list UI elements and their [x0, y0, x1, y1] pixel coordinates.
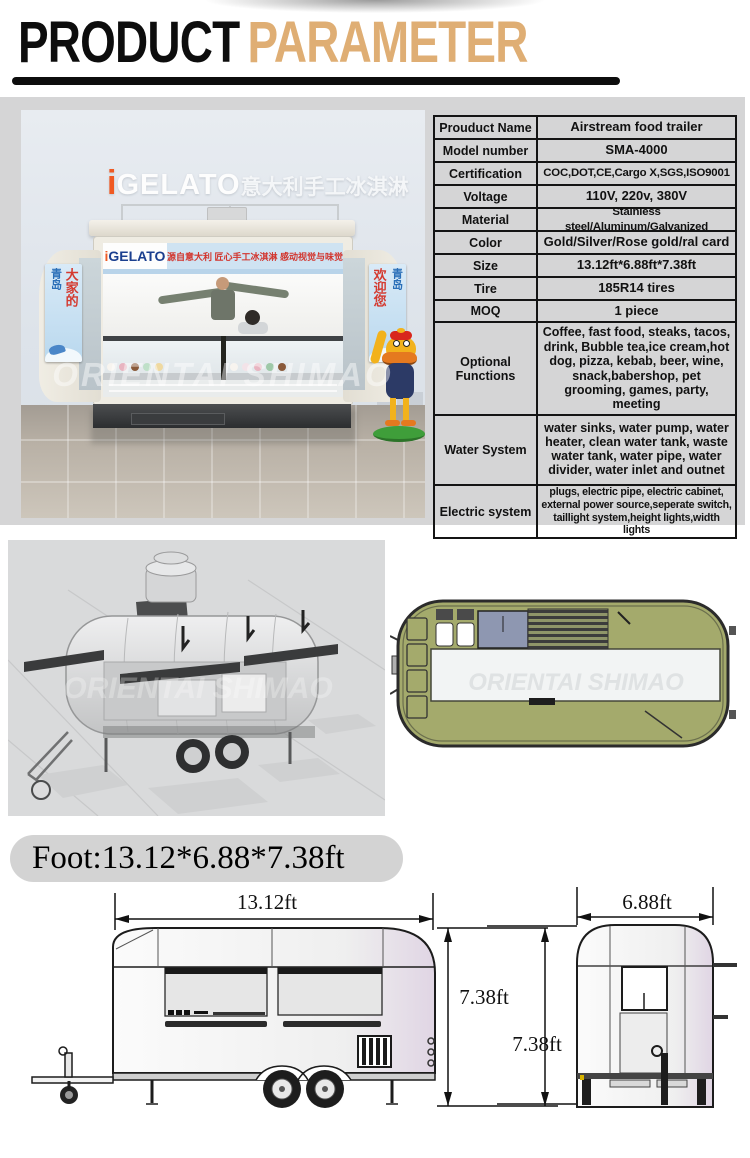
window-top-bar [165, 968, 267, 974]
row-value: COC,DOT,CE,Cargo X,SGS,ISO9001 [536, 163, 735, 184]
row-value: 110V, 220v, 380V [536, 186, 735, 207]
product-parameter-page: PRODUCTPARAMETER iGELATO意大利手工冰淇淋 [0, 0, 750, 1158]
row-value: 185R14 tires [536, 278, 735, 299]
dimension-drawings: 13.12ft 7.38ft 7.38ft [25, 885, 740, 1135]
mural-head [216, 277, 229, 290]
banner-chinese-slogan: 源自意大利 匠心手工冰淇淋 感动视觉与味觉 [167, 243, 343, 269]
sink [457, 623, 474, 646]
plan-watermark: ORIENTAI SHIMAO [468, 669, 684, 696]
spec-panel: iGELATO意大利手工冰淇淋 iGELATO 源自意大利 匠心手工冰淇淋 感动… [0, 97, 745, 525]
side-window-left [165, 968, 267, 1016]
footprint-label: Foot:13.12*6.88*7.38ft [32, 840, 345, 877]
table-row: MaterialStainless steel/Aluminum/Galvani… [435, 207, 735, 230]
row-label: Model number [435, 140, 536, 161]
cad-3d-drawing: ORIENTAI SHIMAO [8, 540, 385, 816]
shelf-bar-right [283, 1021, 381, 1027]
seat [407, 696, 427, 718]
plan-fixtures-top [436, 609, 630, 649]
table-row: Size13.12ft*6.88ft*7.38ft [435, 253, 735, 276]
spec-table: Prouduct NameAirstream food trailer Mode… [433, 115, 737, 539]
dim-length-label: 13.12ft [237, 890, 297, 914]
poster-right-red-text: 欢迎您 [372, 268, 386, 307]
table-row: MOQ1 piece [435, 299, 735, 321]
table-row: Model numberSMA-4000 [435, 138, 735, 161]
table-row: Water Systemwater sinks, water pump, wat… [435, 414, 735, 484]
row-value: 1 piece [536, 301, 735, 321]
rear-bottom-band [577, 1073, 713, 1079]
row-value: Airstream food trailer [536, 117, 735, 138]
rear-jockey-post [661, 1053, 668, 1105]
arrow [115, 915, 129, 923]
row-label: Tire [435, 278, 536, 299]
griddle-area [528, 609, 608, 649]
shelf-edge [713, 963, 737, 967]
row-value: Gold/Silver/Rose gold/ral card [536, 232, 735, 253]
row-label: Size [435, 255, 536, 276]
trailer-interior [103, 274, 343, 336]
table-row: Electric systemplugs, electric pipe, ele… [435, 484, 735, 537]
hub [322, 1086, 328, 1092]
sink [436, 623, 453, 646]
jockey-wheel [32, 781, 50, 799]
row-label: Prouduct Name [435, 117, 536, 138]
wheel-hub [223, 743, 241, 761]
arrow [699, 913, 713, 921]
marker-light [580, 1075, 584, 1080]
rooftop-sign-brand: GELATO [116, 169, 240, 201]
poster-right-blue-text: 青岛 [390, 268, 402, 290]
poster-left-red-text: 大家的 [64, 268, 78, 307]
footprint-pill: Foot:13.12*6.88*7.38ft [10, 835, 403, 882]
seat [407, 618, 427, 640]
arrow [577, 913, 591, 921]
row-label: Material [435, 209, 536, 230]
table-row: CertificationCOC,DOT,CE,Cargo X,SGS,ISO9… [435, 161, 735, 184]
floor-plan-drawing: ORIENTAI SHIMAO [390, 598, 746, 750]
rear-door-panel [620, 1013, 667, 1073]
row-label: Certification [435, 163, 536, 184]
title-underline [12, 77, 620, 85]
arrow [541, 928, 549, 942]
vent-cap [154, 552, 188, 564]
row-value: SMA-4000 [536, 140, 735, 161]
mascot-leg [390, 398, 396, 422]
chassis-step [131, 413, 225, 425]
poster-left-blue-text: 青岛 [49, 268, 61, 290]
row-value: 13.12ft*6.88ft*7.38ft [536, 255, 735, 276]
poster-text: 欢迎您 [372, 268, 386, 307]
mascot-crest [397, 328, 405, 333]
pavement-line [21, 481, 425, 483]
jockey-hub [65, 1091, 73, 1099]
shelf-bar-left [165, 1021, 267, 1027]
table-row: Optional FunctionsCoffee, fast food, ste… [435, 321, 735, 414]
dim-height-side-label: 7.38ft [459, 985, 509, 1009]
mascot-eye [393, 340, 400, 347]
rear-view [577, 925, 737, 1107]
right-knobs [729, 626, 736, 719]
poster-text: 青岛 [49, 268, 61, 290]
page-title-accent: PARAMETER [248, 9, 528, 75]
dim-width-label: 6.88ft [622, 890, 672, 914]
mascot-foot [401, 420, 416, 426]
trailer-photo: iGELATO意大利手工冰淇淋 iGELATO 源自意大利 匠心手工冰淇淋 感动… [21, 110, 425, 518]
page-title-black: PRODUCT [18, 9, 239, 75]
row-value: plugs, electric pipe, electric cabinet, … [536, 486, 735, 537]
banner-brand-text: GELATO [108, 248, 165, 264]
photo-watermark: ORIENTAI SHIMAO [21, 356, 425, 394]
trailer-chassis [93, 404, 351, 428]
table-row: Prouduct NameAirstream food trailer [435, 117, 735, 138]
poster-left: 青岛 大家的 [45, 264, 82, 362]
dim-height-lines [437, 926, 577, 1106]
underbody [103, 726, 315, 738]
hub [279, 1086, 285, 1092]
row-label: Voltage [435, 186, 536, 207]
rooftop-sign-chinese: 意大利手工冰淇淋 [241, 176, 409, 199]
mascot-eye [403, 340, 410, 347]
row-value: Stainless steel/Aluminum/Galvanized [536, 209, 735, 230]
mascot-base [373, 426, 425, 442]
table-row: Voltage110V, 220v, 380V [435, 184, 735, 207]
seat [407, 670, 427, 692]
door-step [529, 698, 555, 705]
mural-torso [211, 290, 235, 320]
poster-text: 大家的 [64, 268, 78, 307]
row-label: Electric system [435, 486, 536, 537]
banner-brand: iGELATO [103, 243, 167, 269]
poster-text: 青岛 [390, 268, 402, 290]
row-label: Water System [435, 416, 536, 484]
side-window-right [278, 968, 382, 1015]
cad-watermark: ORIENTAI SHIMAO [63, 672, 332, 705]
row-value: water sinks, water pump, water heater, c… [536, 416, 735, 484]
shelf-edge [713, 1015, 728, 1019]
wheel-hub [184, 747, 202, 765]
opening-banner: iGELATO 源自意大利 匠心手工冰淇淋 感动视觉与味觉 [103, 243, 343, 269]
page-title: PRODUCTPARAMETER [18, 12, 528, 72]
arrow [419, 915, 433, 923]
tow-bar [32, 1077, 113, 1083]
dim-height-rear-label: 7.38ft [512, 1032, 562, 1056]
row-label: MOQ [435, 301, 536, 321]
trailer-roof-awning [89, 220, 355, 236]
rear-leg [697, 1079, 706, 1105]
rear-leg [582, 1079, 591, 1105]
fixture [457, 609, 474, 620]
row-label: Optional Functions [435, 323, 536, 414]
jockey-post [65, 1053, 72, 1077]
staff-head [245, 310, 260, 325]
frame-box [610, 1080, 650, 1087]
side-view [32, 928, 435, 1108]
arrow [444, 1092, 452, 1106]
fixture [436, 609, 453, 620]
rooftop-sign: iGELATO意大利手工冰淇淋 [107, 164, 387, 206]
window-sill-bar [213, 1012, 265, 1015]
table-row: ColorGold/Silver/Rose gold/ral card [435, 230, 735, 253]
window-top-bar [278, 968, 382, 974]
seat [407, 644, 427, 666]
table-row: Tire185R14 tires [435, 276, 735, 299]
arrow [444, 928, 452, 942]
row-label: Color [435, 232, 536, 253]
row-value: Coffee, fast food, steaks, tacos, drink,… [536, 323, 735, 414]
mascot-leg [403, 398, 409, 422]
jockey-crank [59, 1047, 67, 1055]
